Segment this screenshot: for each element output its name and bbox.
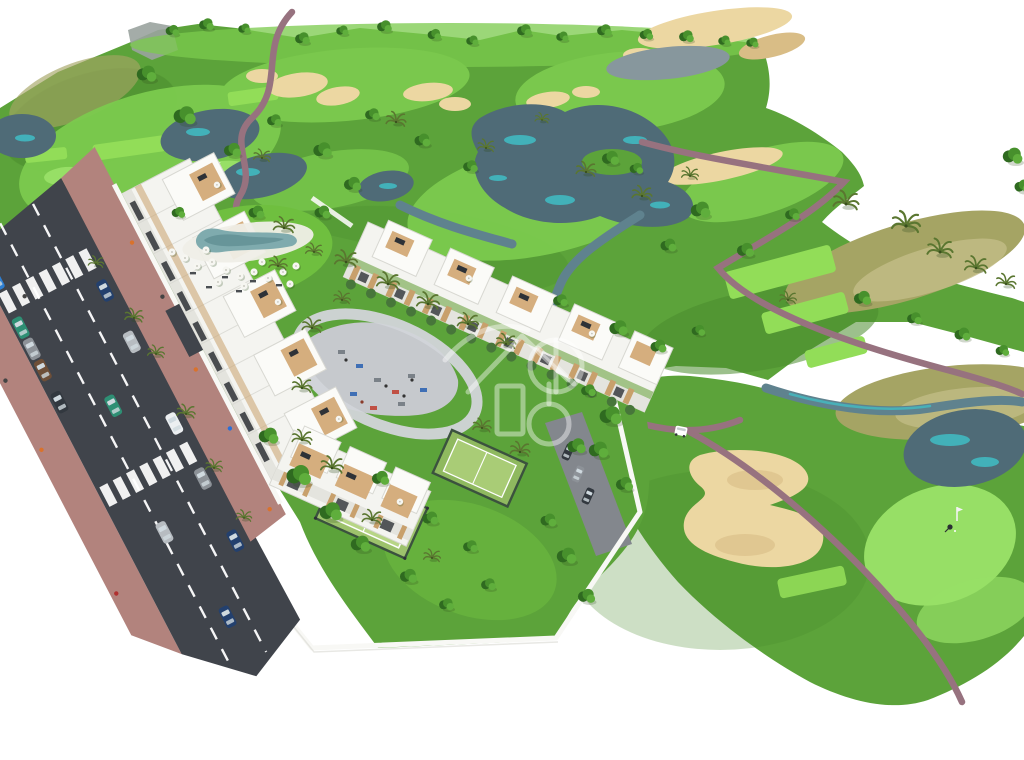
render-canvas xyxy=(0,0,1024,760)
aerial-render xyxy=(0,0,1024,760)
